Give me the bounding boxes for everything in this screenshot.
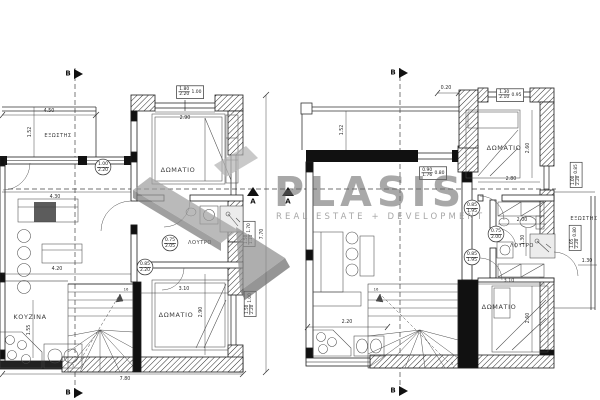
room-label-bedroom-bottom-left: ΔΩΜΑΤΙΟ	[159, 312, 194, 319]
dim-bedroom-top-width-right: 2.80	[506, 177, 517, 182]
dim-bedroom-top-depth-right: 2.60	[526, 143, 531, 154]
stair-tread-first-right: 1	[451, 362, 453, 366]
left-plan	[0, 92, 269, 377]
section-marker-b-top-left: B	[65, 71, 70, 78]
door-size-bath-left: 0.75 2.05	[162, 235, 179, 252]
window-schedule-right-bottom-right: 1.052.20 0.80	[569, 225, 581, 251]
window-schedule-right-top-right: 1.002.20 0.85	[570, 162, 582, 188]
dim-total-width-left: 7.80	[120, 377, 131, 382]
dim-balcony-width-left: 4.50	[44, 109, 55, 114]
section-marker-b-bottom-left: B	[65, 390, 70, 397]
dim-living-width-a-left: 4.30	[50, 195, 61, 200]
dim-total-depth-left: 7.70	[260, 229, 265, 240]
room-label-balcony-right: ΕΞΩΣΤΗΣ	[570, 216, 597, 221]
dim-window-top-left: 2.90	[180, 116, 191, 121]
window-schedule-top-right: 1.302.10 0.95	[496, 88, 524, 101]
dim-living-width-b-left: 4.20	[52, 267, 63, 272]
room-label-bedroom-top-right: ΔΩΜΑΤΙΟ	[487, 145, 522, 152]
section-marker-b-bottom-right: B	[390, 388, 395, 395]
right-plan	[301, 88, 597, 368]
dim-balcony-depth-left: 1.52	[28, 127, 33, 138]
dim-bedroom-depth-right: 2.60	[526, 313, 531, 324]
dim-balcony-depth-right: 1.52	[340, 125, 345, 136]
watermark-brand: PLASIS	[274, 172, 466, 213]
room-label-balcony-left: ΕΞΩΣΤΗΣ	[44, 133, 71, 138]
dim-bedroom-depth-left: 2.90	[199, 307, 204, 318]
window-schedule-top-left: 1.802.20 1.00	[176, 85, 204, 98]
stair-tread-first-left: 1	[72, 364, 74, 368]
window-schedule-right-bottom-left: 1.502.20 1.00	[244, 291, 256, 317]
dim-bath-width-right: 2.00	[517, 218, 528, 223]
floor-plan-sheet: B B B B A A ΕΞΩΣΤΗΣ ΔΩΜΑΤΙΟ ΛΟΥΤΡΟ ΔΩΜΑΤ…	[0, 0, 600, 400]
dim-bedroom-width-right: 3.10	[504, 279, 515, 284]
door-size-balcony-left: 1.00 2.20	[95, 159, 112, 176]
room-label-bedroom-bottom-right: ΔΩΜΑΤΙΟ	[482, 304, 517, 311]
dim-living-width-right: 2.20	[342, 320, 353, 325]
living-furniture-right	[313, 232, 384, 356]
window-schedule-right-top-left: 1.501.10 1.70	[243, 221, 255, 247]
bed-right-bottom	[492, 286, 548, 352]
room-label-kitchen-left: ΚΟΥΖΙΝΑ	[13, 314, 46, 321]
watermark-tagline: REAL ESTATE + DEVELOPMENT	[276, 213, 485, 222]
door-arcs-left	[3, 163, 190, 290]
section-marker-b-top-right: B	[390, 70, 395, 77]
section-marker-a-1: A	[250, 199, 255, 206]
door-size-bedroom-left: 0.85 2.20	[137, 259, 154, 276]
dim-bedroom-width-left: 3.10	[179, 287, 190, 292]
door-size-bath-right: 0.75 2.00	[488, 226, 505, 243]
stair-tread-last-right: 16	[374, 288, 379, 292]
door-size-bedroom-right: 0.85 1.95	[464, 249, 481, 266]
room-label-bedroom-top-left: ΔΩΜΑΤΙΟ	[161, 167, 196, 174]
dim-kitchen-depth-left: 1.55	[27, 325, 32, 336]
room-label-bathroom-left: ΛΟΥΤΡΟ	[188, 240, 212, 245]
living-furniture-left	[18, 199, 83, 294]
dim-offset-top-right: 0.20	[441, 86, 452, 91]
dim-balcony-width-right: 1.30	[582, 259, 593, 264]
dim-bath-depth-right: 1.30	[521, 235, 526, 246]
stair-tread-last-left: 16	[124, 288, 129, 292]
bathroom-left	[186, 206, 243, 232]
balcony-right	[554, 192, 595, 310]
